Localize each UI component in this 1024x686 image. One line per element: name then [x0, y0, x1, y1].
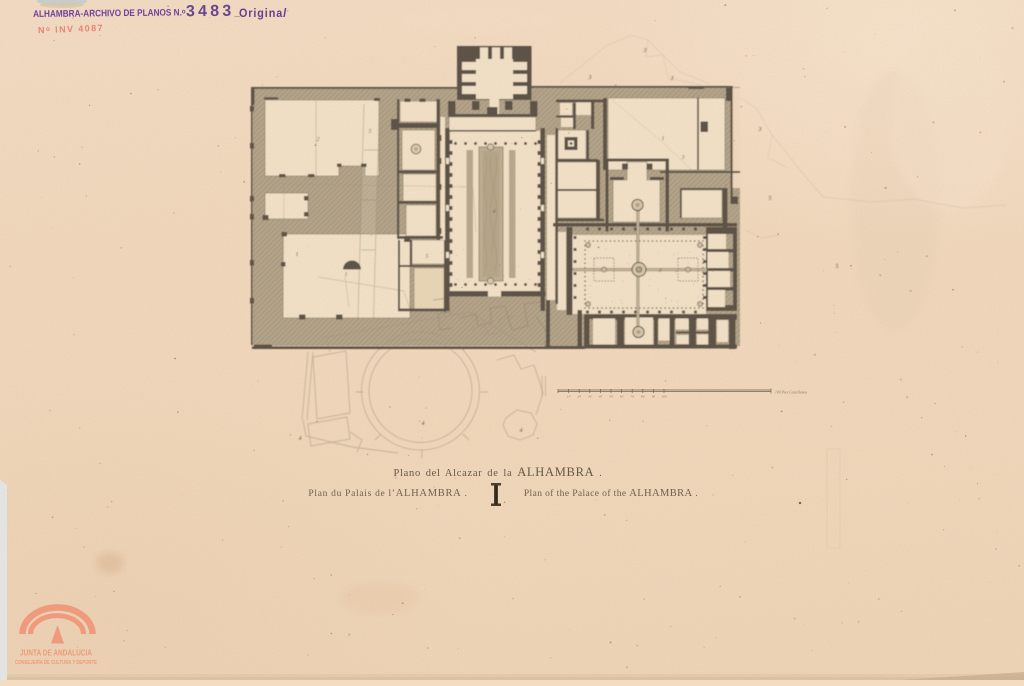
svg-text:JUNTA DE ANDALUCIA: JUNTA DE ANDALUCIA: [20, 649, 92, 658]
svg-text:CONSEJERÍA DE CULTURA Y DEPORT: CONSEJERÍA DE CULTURA Y DEPORTE: [15, 658, 97, 666]
